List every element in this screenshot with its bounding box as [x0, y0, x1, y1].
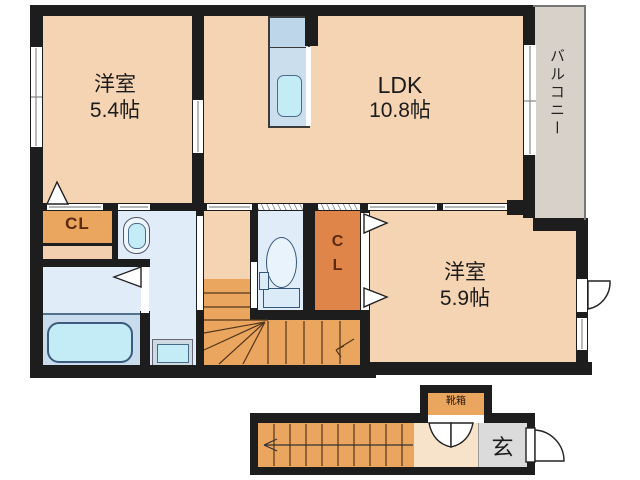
door-swing-bath	[114, 267, 141, 287]
door-swing-bedroom1	[47, 182, 68, 204]
floor-plan: 洋室 5.4帖 LDK 10.8帖 洋室 5.9帖 バルコニー CL C L 玄…	[0, 0, 640, 480]
stairs-entrance-lines	[264, 424, 413, 466]
entrance-door-leaf	[526, 428, 535, 462]
door-swing-closet2-bottom	[364, 288, 387, 307]
label-balcony: バルコニー	[546, 48, 567, 223]
bedroom2-size: 5.9帖	[405, 286, 525, 312]
ldk-name: LDK	[340, 72, 460, 98]
shoebox-door-right	[451, 423, 473, 447]
closet2-char2: L	[315, 254, 360, 278]
stairs-upper-arrow	[336, 339, 354, 357]
label-closet1: CL	[43, 214, 112, 234]
label-closet2: C L	[315, 230, 360, 278]
label-ldk: LDK 10.8帖	[340, 72, 460, 124]
ldk-size: 10.8帖	[340, 98, 460, 124]
label-bedroom1: 洋室 5.4帖	[55, 72, 175, 124]
label-entrance: 玄	[478, 430, 527, 462]
entrance-door-arc	[535, 430, 564, 461]
label-bedroom2: 洋室 5.9帖	[405, 260, 525, 312]
closet2-char1: C	[315, 230, 360, 254]
door-swing-closet2-top	[364, 214, 387, 233]
stairs-upper-lines	[204, 293, 354, 364]
bedroom1-size: 5.4帖	[55, 98, 175, 124]
bedroom2-name: 洋室	[405, 260, 525, 286]
label-shoebox: 靴箱	[428, 396, 484, 408]
door-arc-bedroom2	[588, 281, 610, 309]
bedroom1-name: 洋室	[55, 72, 175, 98]
shoebox-door-left	[429, 423, 451, 447]
